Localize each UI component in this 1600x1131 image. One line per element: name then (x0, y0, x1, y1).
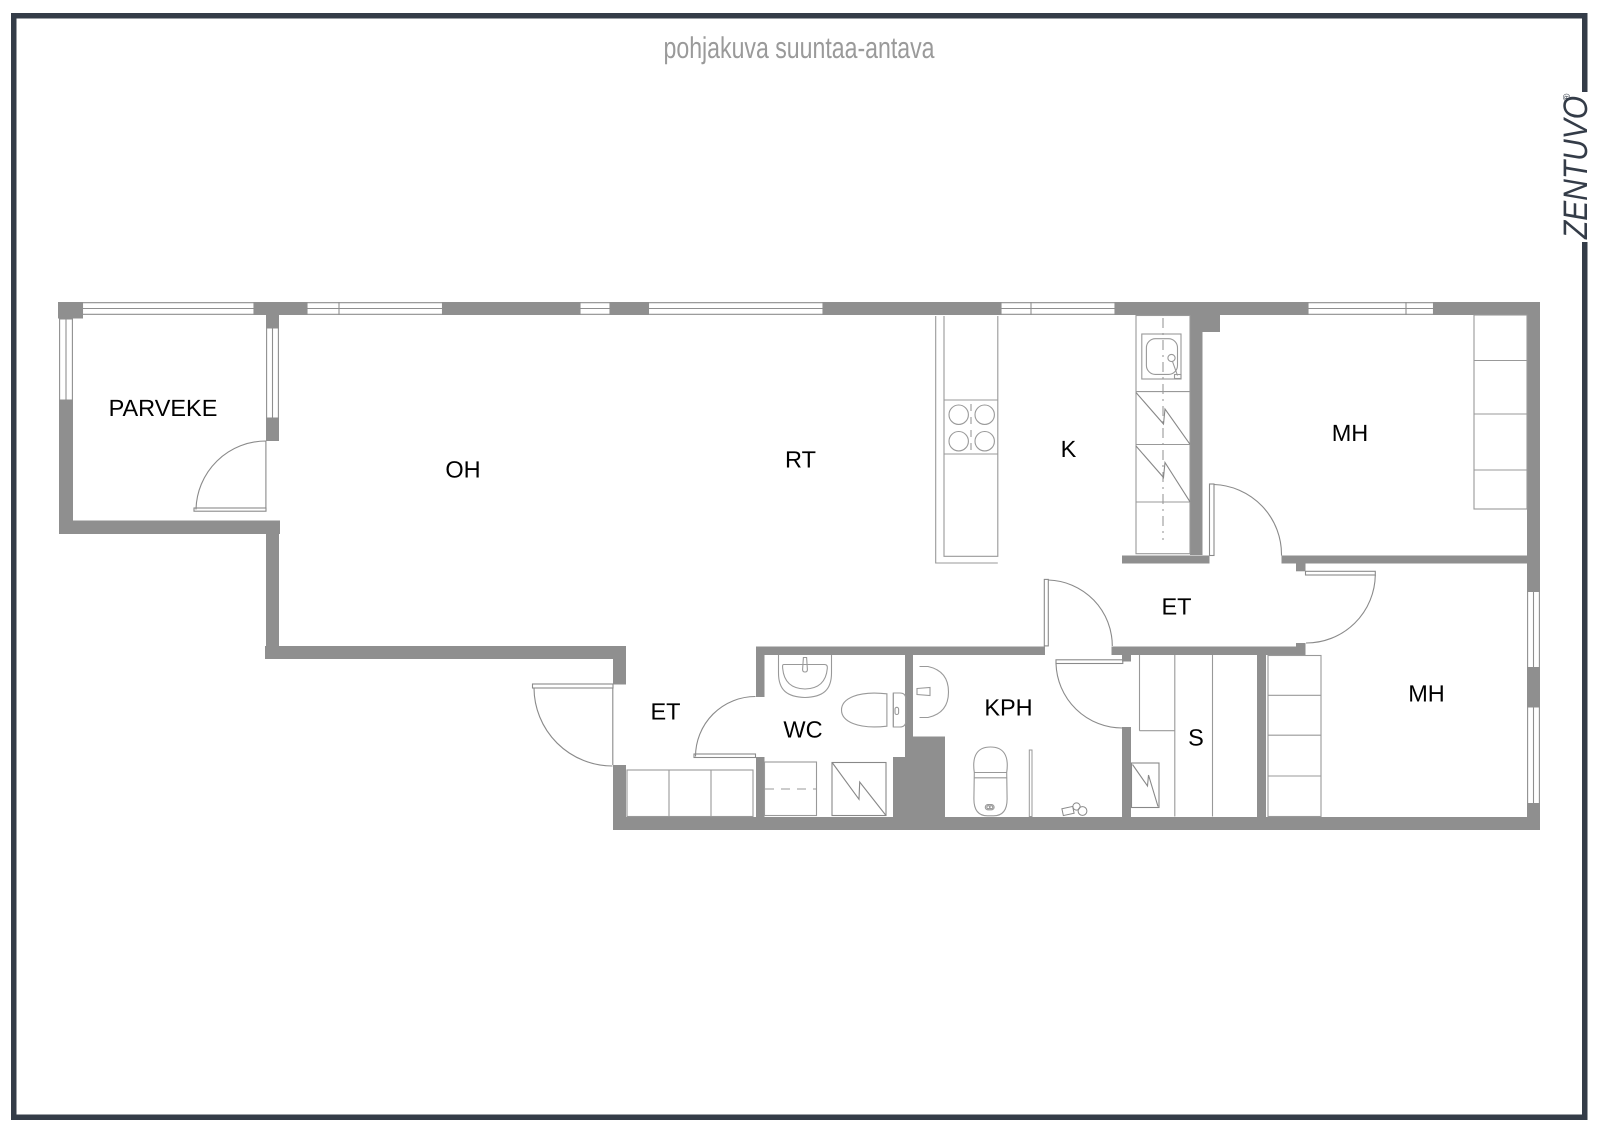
svg-text:S: S (1188, 725, 1204, 751)
svg-text:OH: OH (445, 457, 480, 483)
svg-text:RT: RT (785, 447, 816, 473)
svg-text:KPH: KPH (984, 695, 1032, 721)
svg-text:ET: ET (650, 699, 680, 725)
svg-text:ET: ET (1161, 594, 1191, 620)
svg-text:WC: WC (783, 717, 822, 743)
svg-text:pohjakuva suuntaa-antava: pohjakuva suuntaa-antava (664, 32, 935, 65)
svg-text:®: ® (1562, 93, 1573, 101)
svg-text:PARVEKE: PARVEKE (109, 395, 218, 421)
svg-text:K: K (1061, 436, 1077, 462)
svg-text:MH: MH (1408, 681, 1445, 707)
svg-text:ZENTUVO: ZENTUVO (1557, 96, 1595, 240)
svg-text:MH: MH (1332, 420, 1369, 446)
